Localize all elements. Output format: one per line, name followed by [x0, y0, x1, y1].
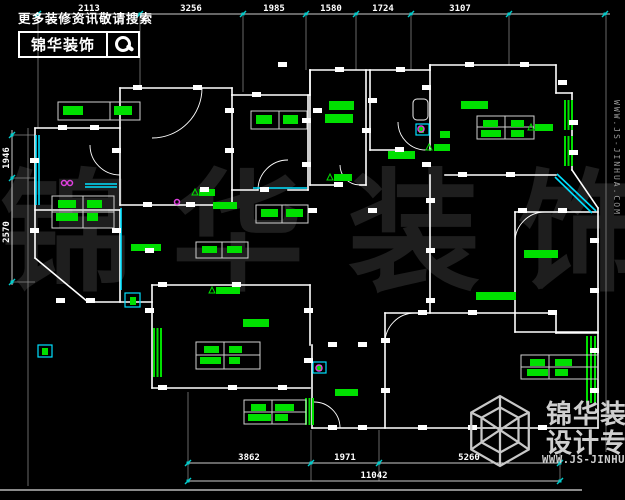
- brand-logo-text: 锦华装饰: [20, 34, 106, 55]
- svg-text:3107: 3107: [449, 4, 471, 14]
- magenta-fittings: [62, 126, 425, 371]
- svg-text:11042: 11042: [360, 471, 387, 481]
- cube-logo-icon: [462, 394, 538, 468]
- annotation-tables: [52, 102, 598, 424]
- magnifier-icon: [108, 33, 138, 56]
- svg-text:2570: 2570: [2, 221, 12, 243]
- window-bar-hatches: [154, 100, 595, 425]
- brand-logo-box: 锦华装饰: [18, 31, 140, 58]
- triangle-markers: [192, 124, 534, 293]
- svg-text:1580: 1580: [320, 4, 342, 14]
- cad-floorplan-screenshot: 锦 华 装 饰 21133256198515801724310738621971…: [0, 0, 625, 500]
- svg-text:1985: 1985: [263, 4, 285, 14]
- svg-text:3256: 3256: [180, 4, 202, 14]
- footer-logo: 锦华装饰 设计专家 WWW.JS-JINHUA.COM: [462, 392, 625, 470]
- svg-text:3862: 3862: [238, 453, 260, 463]
- footer-url-text: WWW.JS-JINHUA.COM: [542, 454, 625, 466]
- svg-text:1724: 1724: [372, 4, 394, 14]
- svg-text:1971: 1971: [334, 453, 356, 463]
- promo-header: 更多装修资讯敬请搜索 锦华装饰: [18, 8, 153, 58]
- wall-dim-text-ticks: [30, 62, 599, 430]
- side-url-text: WWW.JS-JINHUA.COM: [612, 100, 621, 216]
- plumbing-fixtures: [413, 99, 428, 120]
- svg-text:1946: 1946: [2, 147, 12, 169]
- search-hint-text: 更多装修资讯敬请搜索: [18, 8, 153, 27]
